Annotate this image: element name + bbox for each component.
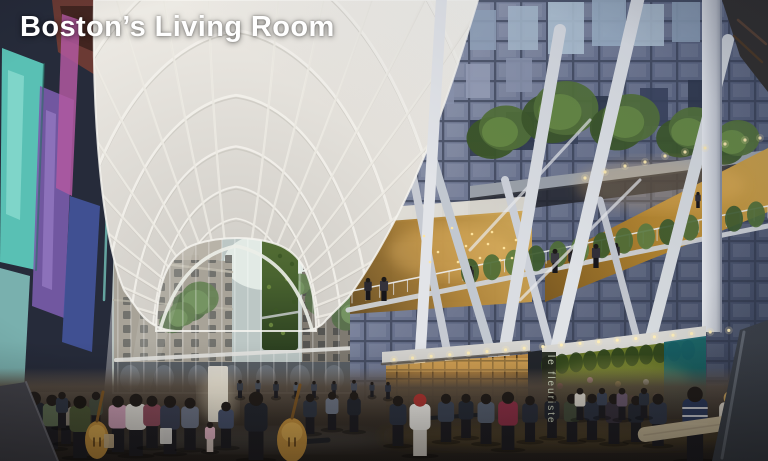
florist-sign-text: le fleuriste	[545, 355, 556, 427]
slide-title: Boston’s Living Room	[20, 13, 335, 42]
atrium-rendering	[0, 0, 768, 461]
presentation-slide: Boston’s Living Room le fleuriste	[0, 0, 768, 461]
